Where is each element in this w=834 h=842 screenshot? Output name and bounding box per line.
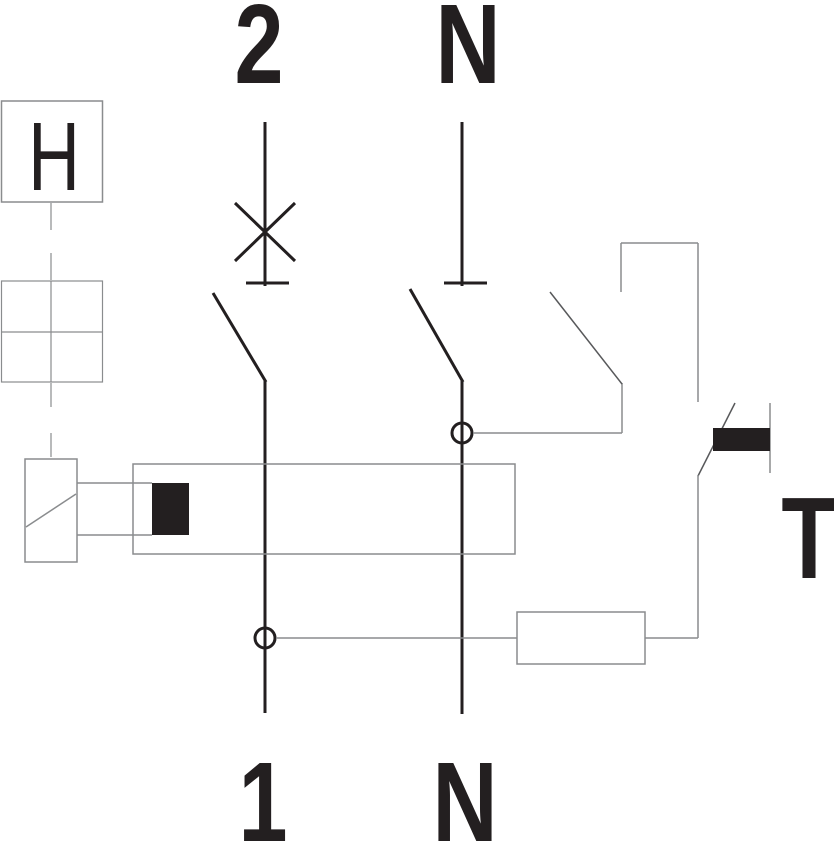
- sensing-coil-box: [133, 464, 515, 554]
- aux-contact-blade: [550, 292, 622, 384]
- rcbo-schematic: 2 N 1 N H: [0, 0, 834, 842]
- relay-to-coil-wires: [77, 483, 152, 535]
- linkage-grid-crosslines: [2, 281, 103, 382]
- test-circuit: T: [276, 243, 834, 664]
- terminal-label-2: 2: [234, 0, 283, 108]
- coil-core-black-rect: [152, 483, 189, 535]
- aux-module: H: [2, 101, 153, 562]
- pole-n-switch-blade: [410, 289, 463, 382]
- terminal-label-n-top: N: [435, 0, 500, 107]
- circuit-diagram-page: 2 N 1 N H: [0, 0, 834, 842]
- test-resistor-box: [517, 612, 645, 664]
- pole-line-2: [213, 122, 295, 713]
- test-button-cap: [713, 428, 770, 451]
- pole-line-n: [410, 122, 487, 714]
- test-button-label: T: [781, 474, 834, 603]
- terminal-label-n-bottom: N: [432, 738, 497, 842]
- aux-module-label: H: [28, 104, 80, 212]
- test-wire-top-loop: [621, 243, 698, 402]
- sensing-transformer: [133, 464, 515, 554]
- terminal-label-1: 1: [238, 740, 287, 842]
- trip-relay-diagonal: [26, 494, 76, 527]
- pole-2-switch-blade: [213, 293, 266, 382]
